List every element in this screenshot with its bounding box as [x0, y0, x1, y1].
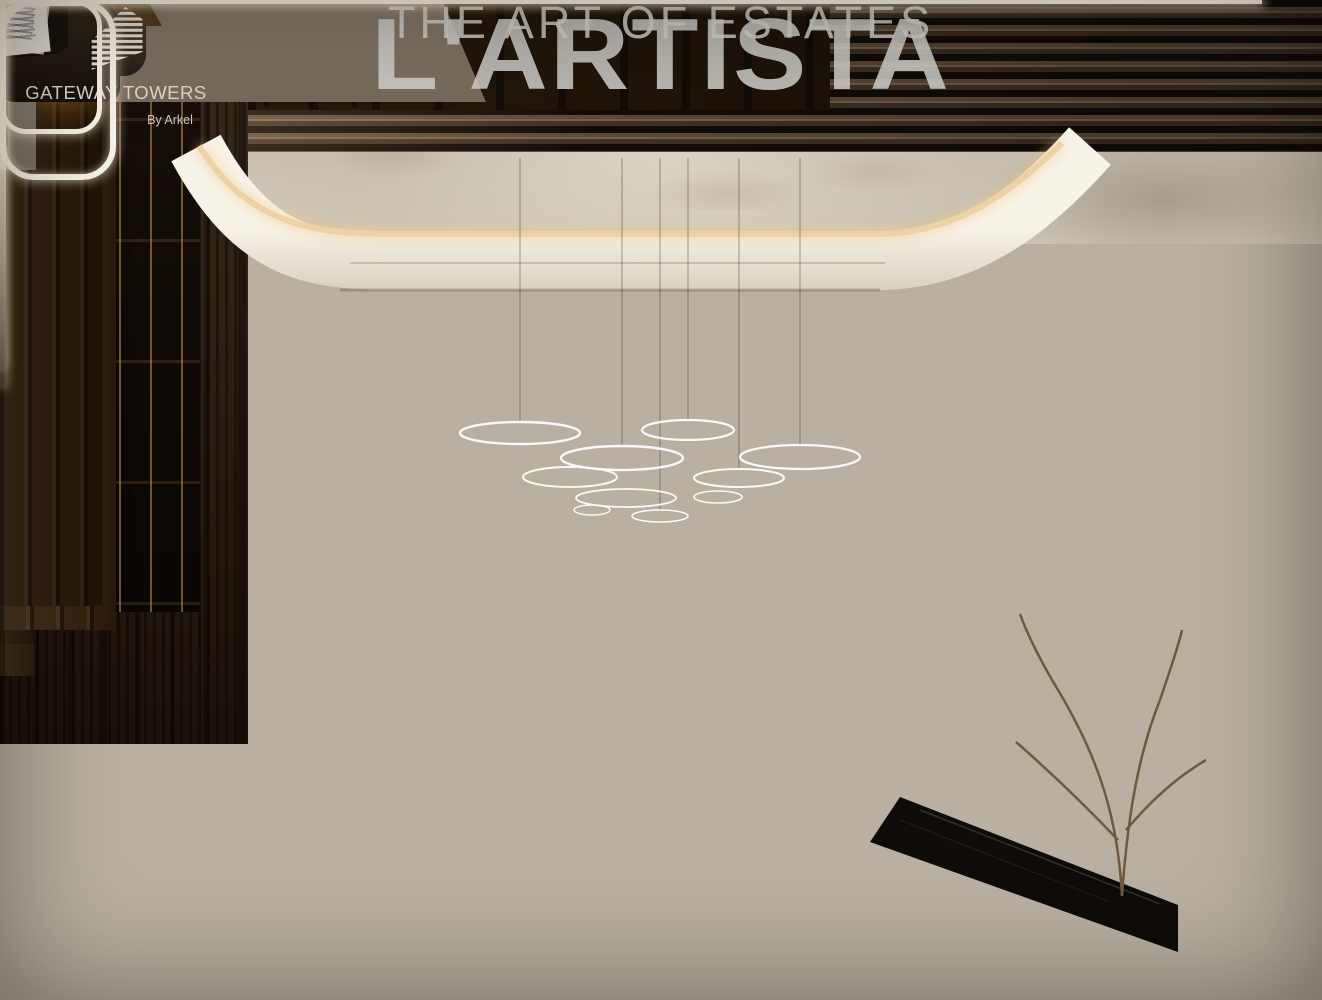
tree-branches — [980, 560, 1240, 940]
led-frame-corner-right — [0, 0, 102, 134]
ring-chandeliers — [420, 148, 900, 540]
led-frame-right-vertical — [0, 0, 6, 388]
ceiling-led-top-line — [0, 0, 1262, 4]
watermark-tagline: THE ART OF ESTATES — [0, 0, 1322, 45]
lobby-render-scene: GATEWAY TOWERS By Arkel L'ARTISTA THE AR… — [0, 0, 1322, 1000]
